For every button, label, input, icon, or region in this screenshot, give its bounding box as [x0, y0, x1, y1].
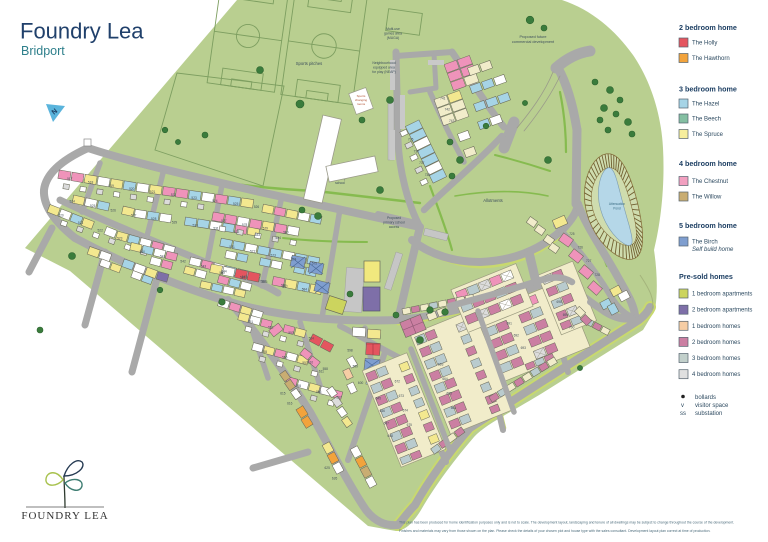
svg-text:743: 743 — [449, 119, 455, 123]
svg-text:523: 523 — [117, 236, 123, 240]
svg-text:645: 645 — [376, 397, 382, 401]
svg-text:735: 735 — [408, 138, 414, 142]
svg-text:The Hazel: The Hazel — [692, 102, 719, 108]
svg-text:518: 518 — [88, 180, 94, 184]
svg-text:The Spruce: The Spruce — [692, 132, 724, 138]
svg-text:525: 525 — [233, 202, 239, 206]
svg-text:commercial development: commercial development — [512, 40, 555, 44]
svg-text:The Holly: The Holly — [692, 41, 717, 47]
svg-text:580: 580 — [219, 271, 225, 275]
svg-text:577: 577 — [221, 219, 227, 223]
svg-text:3 bedroom home: 3 bedroom home — [679, 85, 737, 94]
svg-text:542: 542 — [180, 260, 186, 264]
svg-text:551: 551 — [248, 320, 254, 324]
svg-text:578: 578 — [242, 223, 248, 227]
svg-text:Bridport: Bridport — [21, 44, 65, 58]
svg-text:692: 692 — [514, 334, 520, 338]
svg-text:665: 665 — [447, 392, 453, 396]
svg-text:611: 611 — [319, 369, 324, 373]
svg-text:524: 524 — [212, 199, 218, 203]
svg-text:Allotments: Allotments — [483, 198, 503, 203]
svg-text:600: 600 — [358, 381, 364, 385]
svg-text:579: 579 — [263, 227, 269, 231]
svg-text:580: 580 — [283, 230, 289, 234]
svg-text:725: 725 — [569, 232, 575, 236]
svg-text:626: 626 — [332, 477, 338, 481]
svg-text:2 bedroom apartments: 2 bedroom apartments — [692, 308, 752, 314]
svg-text:675: 675 — [407, 423, 413, 427]
svg-text:741: 741 — [440, 97, 446, 101]
svg-text:575: 575 — [312, 262, 318, 266]
svg-text:572: 572 — [250, 249, 256, 253]
svg-text:663: 663 — [438, 363, 444, 367]
svg-text:726: 726 — [578, 246, 584, 250]
svg-text:584: 584 — [302, 288, 308, 292]
svg-text:552: 552 — [268, 326, 274, 330]
svg-text:556: 556 — [282, 356, 288, 360]
svg-text:substation: substation — [695, 411, 722, 417]
svg-text:visitor space: visitor space — [695, 403, 729, 409]
svg-text:527: 527 — [131, 213, 137, 217]
svg-text:553: 553 — [288, 331, 294, 335]
svg-text:The Chestnut: The Chestnut — [692, 179, 728, 185]
svg-text:517: 517 — [67, 177, 73, 181]
svg-text:598: 598 — [347, 349, 353, 353]
svg-text:540: 540 — [140, 250, 146, 254]
svg-text:625: 625 — [325, 466, 331, 470]
svg-text:Neighbourhood: Neighbourhood — [372, 61, 395, 65]
svg-text:games area: games area — [384, 32, 402, 36]
svg-text:519: 519 — [109, 184, 115, 188]
svg-text:522: 522 — [171, 193, 177, 197]
svg-text:520: 520 — [58, 213, 64, 217]
svg-text:610: 610 — [308, 361, 314, 365]
svg-text:525: 525 — [90, 204, 96, 208]
svg-text:Foundry Lea: Foundry Lea — [20, 19, 144, 44]
svg-text:The Beech: The Beech — [692, 117, 721, 123]
svg-text:Sports pitches: Sports pitches — [296, 61, 323, 66]
svg-text:664: 664 — [442, 377, 448, 381]
svg-text:Multi-use: Multi-use — [386, 27, 400, 31]
svg-text:693: 693 — [521, 346, 527, 350]
svg-text:738: 738 — [425, 173, 431, 177]
svg-text:Proposed future: Proposed future — [519, 35, 546, 39]
svg-text:541: 541 — [160, 255, 166, 259]
svg-text:rooms: rooms — [357, 102, 366, 106]
svg-text:583: 583 — [281, 284, 287, 288]
svg-text:555: 555 — [262, 350, 268, 354]
svg-text:698: 698 — [557, 300, 563, 304]
svg-text:521: 521 — [150, 190, 156, 194]
svg-text:543: 543 — [201, 265, 207, 269]
svg-text:equipped area: equipped area — [373, 66, 395, 70]
svg-text:526: 526 — [111, 209, 117, 213]
svg-text:523: 523 — [191, 196, 197, 200]
svg-text:524: 524 — [70, 200, 76, 204]
svg-text:4 bedroom home: 4 bedroom home — [679, 159, 737, 168]
svg-text:Pre-sold homes: Pre-sold homes — [679, 272, 733, 281]
svg-text:554: 554 — [309, 336, 315, 340]
svg-text:531: 531 — [213, 227, 219, 231]
svg-text:521: 521 — [78, 221, 84, 225]
svg-text:566: 566 — [316, 390, 322, 394]
svg-text:3 bedroom homes: 3 bedroom homes — [692, 356, 740, 362]
svg-text:primary school: primary school — [383, 221, 405, 225]
svg-text:647: 647 — [384, 421, 390, 425]
svg-text:574: 574 — [291, 258, 297, 262]
svg-text:This plan has been produced fo: This plan has been produced for home ide… — [399, 521, 734, 525]
svg-text:565: 565 — [296, 384, 302, 388]
svg-text:Proposed: Proposed — [387, 216, 401, 220]
svg-text:533: 533 — [255, 233, 261, 237]
svg-text:The Willow: The Willow — [692, 195, 722, 201]
svg-text:5 bedroom home: 5 bedroom home — [679, 221, 737, 230]
svg-text:school: school — [335, 181, 345, 185]
svg-text:528: 528 — [151, 217, 157, 221]
svg-text:Finishes and materials may var: Finishes and materials may vary from tho… — [399, 529, 710, 533]
svg-text:699: 699 — [563, 313, 569, 317]
svg-text:666: 666 — [451, 406, 457, 410]
svg-text:534: 534 — [276, 236, 282, 240]
svg-text:ss: ss — [680, 411, 686, 417]
svg-text:615: 615 — [280, 392, 286, 396]
svg-text:742: 742 — [445, 108, 451, 112]
svg-text:573: 573 — [271, 254, 277, 258]
svg-text:2 bedroom home: 2 bedroom home — [679, 23, 737, 32]
svg-text:571: 571 — [229, 245, 235, 249]
svg-text:The Birch: The Birch — [692, 240, 718, 246]
svg-text:673: 673 — [399, 394, 405, 398]
svg-text:for play (NEAP): for play (NEAP) — [372, 70, 396, 74]
svg-text:727: 727 — [586, 259, 592, 263]
svg-text:648: 648 — [388, 434, 394, 438]
svg-text:bollards: bollards — [695, 395, 716, 401]
svg-text:4 bedroom homes: 4 bedroom homes — [692, 372, 740, 378]
svg-text:582: 582 — [261, 280, 267, 284]
svg-text:Self build home: Self build home — [692, 247, 734, 253]
svg-text:530: 530 — [193, 224, 199, 228]
svg-text:2 bedroom homes: 2 bedroom homes — [692, 340, 740, 346]
svg-text:616: 616 — [287, 401, 293, 405]
svg-text:532: 532 — [234, 230, 240, 234]
svg-text:Attenuation: Attenuation — [609, 202, 625, 206]
svg-text:access: access — [389, 225, 400, 229]
svg-text:FOUNDRY LEA: FOUNDRY LEA — [21, 510, 108, 522]
svg-text:The Hawthorn: The Hawthorn — [692, 56, 730, 62]
svg-text:672: 672 — [395, 380, 401, 384]
svg-text:728: 728 — [595, 273, 601, 277]
svg-text:1 bedroom homes: 1 bedroom homes — [692, 324, 740, 330]
svg-text:520: 520 — [129, 187, 135, 191]
svg-text:526: 526 — [254, 205, 260, 209]
svg-text:646: 646 — [380, 409, 386, 413]
svg-text:522: 522 — [98, 229, 104, 233]
svg-text:674: 674 — [403, 409, 409, 413]
svg-text:700: 700 — [569, 325, 575, 329]
svg-text:567: 567 — [336, 396, 342, 400]
svg-text:737: 737 — [419, 161, 425, 165]
svg-text:529: 529 — [172, 220, 178, 224]
svg-text:599: 599 — [353, 365, 359, 369]
svg-text:Pond: Pond — [613, 207, 621, 211]
svg-text:v: v — [681, 403, 684, 409]
svg-text:736: 736 — [414, 150, 420, 154]
svg-text:581: 581 — [240, 275, 246, 279]
svg-text:691: 691 — [507, 322, 513, 326]
svg-text:(MUGA): (MUGA) — [387, 36, 399, 40]
svg-text:1 bedroom apartments: 1 bedroom apartments — [692, 292, 752, 298]
